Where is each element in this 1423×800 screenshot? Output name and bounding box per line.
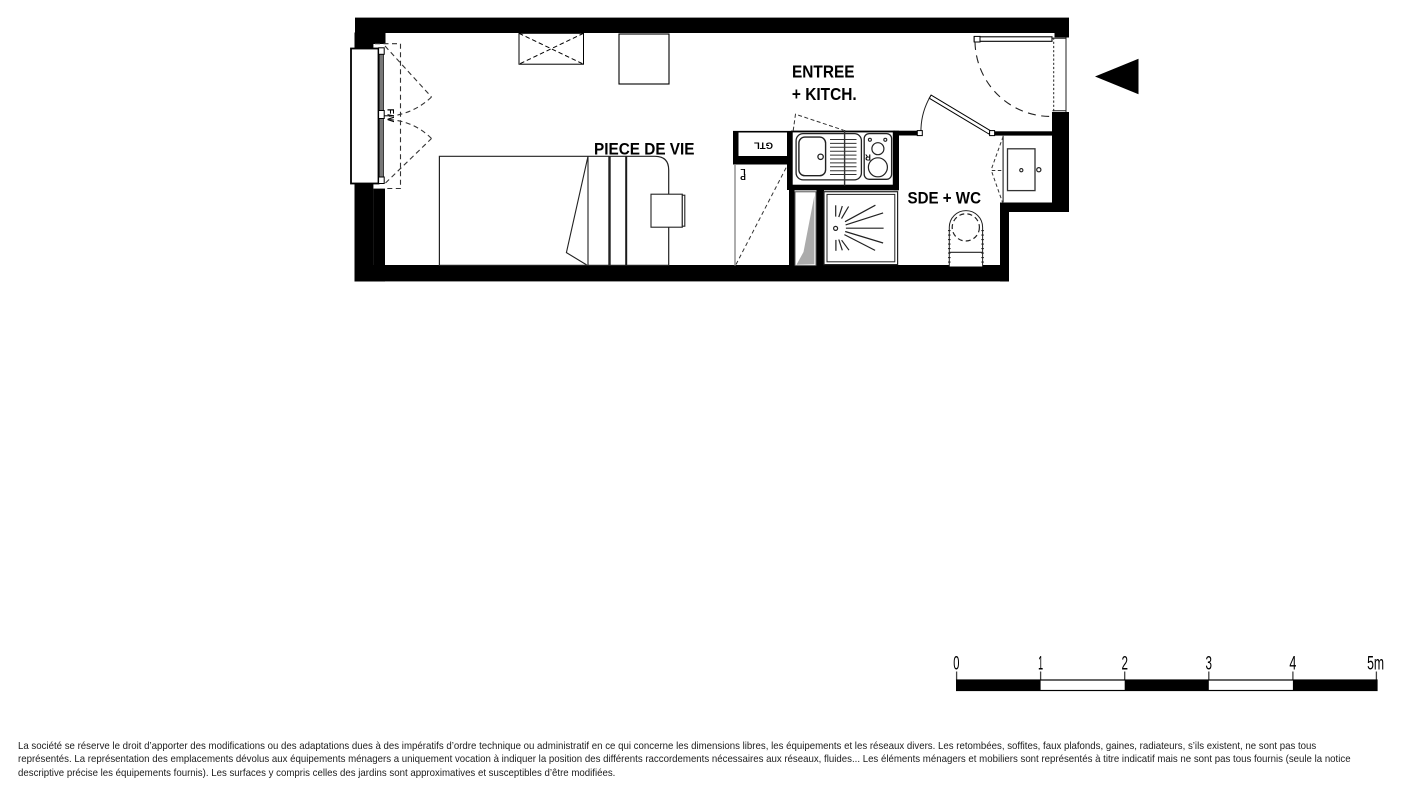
- svg-text:3: 3: [1206, 654, 1213, 675]
- svg-text:4: 4: [1289, 654, 1296, 675]
- svg-text:ENTREE: ENTREE: [792, 61, 855, 81]
- svg-text:F/V: F/V: [386, 109, 396, 123]
- svg-text:+ KITCH.: + KITCH.: [792, 84, 857, 104]
- svg-text:5m: 5m: [1367, 654, 1384, 675]
- svg-text:0: 0: [953, 654, 959, 675]
- svg-text:SDE + WC: SDE + WC: [908, 188, 982, 207]
- svg-text:PIECE DE VIE: PIECE DE VIE: [594, 140, 695, 159]
- svg-text:R: R: [865, 152, 871, 161]
- svg-text:1: 1: [1038, 654, 1043, 675]
- svg-text:GTL: GTL: [754, 139, 773, 150]
- svg-text:2: 2: [1121, 654, 1128, 675]
- svg-text:P: P: [740, 172, 746, 182]
